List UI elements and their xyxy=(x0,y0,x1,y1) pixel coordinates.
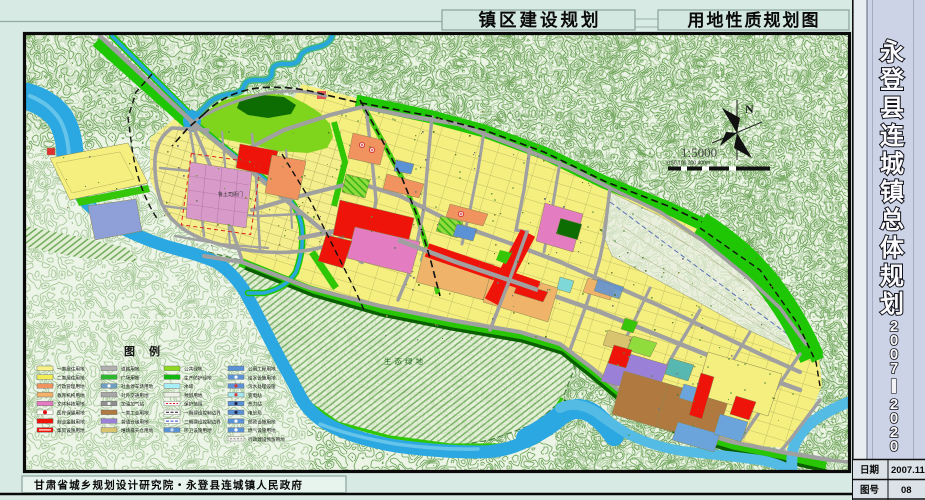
svg-text:连: 连 xyxy=(880,122,905,150)
svg-text:道路用地: 道路用地 xyxy=(121,366,140,373)
svg-text:广场用地: 广场用地 xyxy=(121,374,140,381)
svg-text:总: 总 xyxy=(880,206,904,234)
svg-text:规: 规 xyxy=(880,263,904,290)
svg-text:电信局: 电信局 xyxy=(248,410,262,417)
svg-text:商业金融用地: 商业金融用地 xyxy=(57,418,85,425)
svg-text:08: 08 xyxy=(901,485,912,496)
svg-text:社会停车场用地: 社会停车场用地 xyxy=(121,383,154,390)
svg-text:甘肃省城乡规划设计研究院・永登县连城镇人民政府: 甘肃省城乡规划设计研究院・永登县连城镇人民政府 xyxy=(34,479,303,492)
svg-text:1:5000: 1:5000 xyxy=(681,145,717,160)
svg-text:公用工程用地: 公用工程用地 xyxy=(248,366,276,373)
svg-text:生产防护绿地: 生产防护绿地 xyxy=(184,374,212,381)
svg-text:图例: 图例 xyxy=(124,344,174,358)
svg-text:二类居住用地: 二类居住用地 xyxy=(57,374,85,381)
svg-text:热力站: 热力站 xyxy=(248,401,262,408)
svg-text:用地性质规划图: 用地性质规划图 xyxy=(688,10,821,30)
svg-text:保护范围: 保护范围 xyxy=(184,401,203,408)
svg-text:邮政设施用地: 邮政设施用地 xyxy=(248,418,276,425)
svg-text:镇: 镇 xyxy=(880,179,904,206)
svg-text:2007.11: 2007.11 xyxy=(891,465,925,476)
svg-text:0 50 100 200 400m: 0 50 100 200 400m xyxy=(667,161,710,167)
svg-text:加油加气站: 加油加气站 xyxy=(121,401,144,408)
svg-text:登: 登 xyxy=(879,67,905,94)
svg-text:教育机构用地: 教育机构用地 xyxy=(57,392,85,399)
svg-text:图号: 图号 xyxy=(860,485,880,496)
svg-text:燃气设施用地: 燃气设施用地 xyxy=(248,427,276,434)
svg-text:环卫设施用地: 环卫设施用地 xyxy=(184,427,212,434)
svg-text:水域: 水域 xyxy=(184,383,194,389)
svg-text:医疗保健用地: 医疗保健用地 xyxy=(57,410,85,417)
svg-text:县: 县 xyxy=(880,95,904,122)
svg-text:永: 永 xyxy=(880,39,904,66)
svg-text:预留用地: 预留用地 xyxy=(184,392,203,399)
svg-text:N: N xyxy=(745,102,754,116)
svg-text:鲁土司衙门: 鲁土司衙门 xyxy=(218,191,243,198)
svg-text:镇区建设规划: 镇区建设规划 xyxy=(479,10,602,30)
svg-text:污水处理设施: 污水处理设施 xyxy=(248,383,276,390)
svg-text:一类居住用地: 一类居住用地 xyxy=(57,366,85,373)
svg-text:行政管理用地: 行政管理用地 xyxy=(57,383,85,390)
svg-text:变电站: 变电站 xyxy=(248,392,262,399)
svg-text:城: 城 xyxy=(880,150,904,178)
svg-text:体: 体 xyxy=(880,235,905,262)
svg-text:0: 0 xyxy=(890,438,898,455)
svg-text:一期建设控制边界: 一期建设控制边界 xyxy=(184,410,221,417)
svg-text:生态绿地: 生态绿地 xyxy=(384,356,426,366)
svg-text:公共绿地: 公共绿地 xyxy=(184,366,203,373)
svg-text:堆场露天仓用地: 堆场露天仓用地 xyxy=(121,427,154,434)
svg-text:文体科技用地: 文体科技用地 xyxy=(57,401,85,408)
svg-text:行政建设预留用地: 行政建设预留用地 xyxy=(248,436,285,443)
svg-text:对外交通用地: 对外交通用地 xyxy=(121,392,149,399)
svg-text:划: 划 xyxy=(880,291,904,318)
svg-text:7: 7 xyxy=(890,360,898,377)
svg-text:二期建设控制边界: 二期建设控制边界 xyxy=(184,418,221,425)
svg-text:给水设施用地: 给水设施用地 xyxy=(248,374,276,381)
svg-text:普通仓储用地: 普通仓储用地 xyxy=(121,418,149,425)
svg-text:一类工业用地: 一类工业用地 xyxy=(121,410,149,417)
svg-text:日期: 日期 xyxy=(860,464,879,476)
svg-text:集贸设施用地: 集贸设施用地 xyxy=(57,427,85,434)
